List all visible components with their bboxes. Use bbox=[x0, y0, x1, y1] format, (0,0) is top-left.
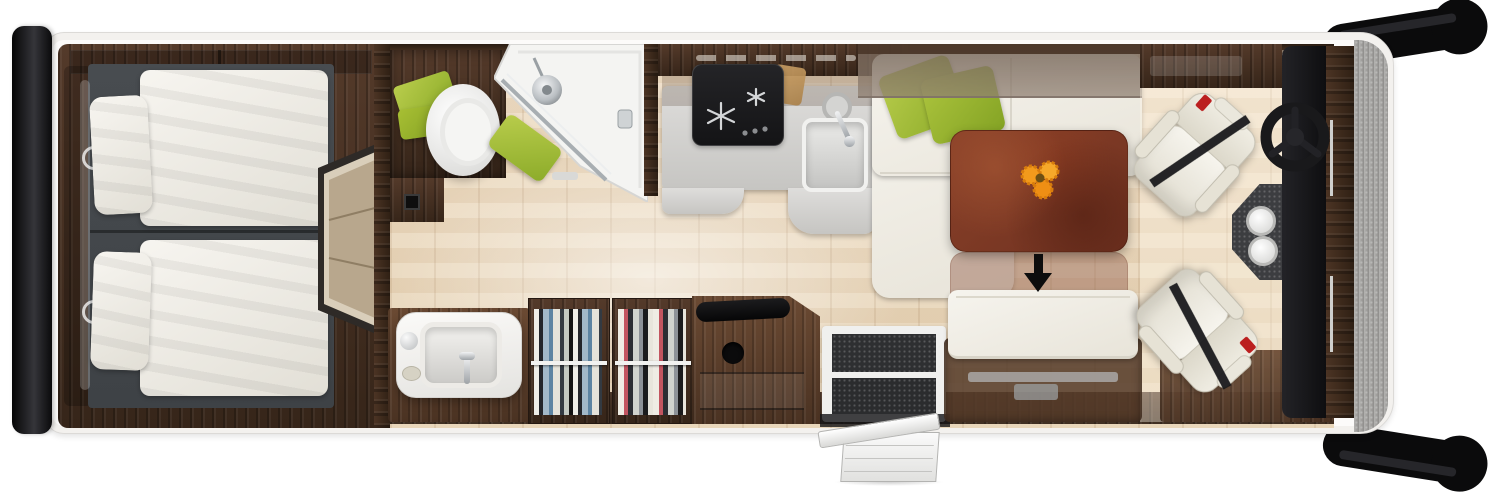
door-mat-lower bbox=[832, 378, 936, 414]
wardrobe-right bbox=[612, 298, 694, 424]
basin-knob-icon bbox=[400, 332, 418, 350]
cab-door-line-bottom bbox=[1330, 276, 1333, 352]
window-sheen bbox=[80, 80, 90, 390]
door-mat-upper bbox=[832, 334, 936, 372]
tv-swivel-top bbox=[696, 298, 791, 323]
table-slide-arrow-icon bbox=[1024, 254, 1053, 294]
basin-tap-icon bbox=[464, 356, 470, 384]
sideboard-shelf bbox=[700, 372, 804, 410]
bed-pillow-top bbox=[89, 95, 153, 216]
underbench-motor bbox=[1014, 384, 1058, 400]
shower-mixer-icon bbox=[618, 110, 632, 128]
gas-hob bbox=[692, 64, 784, 146]
lounge-table bbox=[950, 130, 1128, 252]
flower-vase-icon bbox=[1017, 157, 1063, 203]
cupholder-bottom-icon bbox=[1248, 236, 1278, 266]
bed-duvet-bottom bbox=[140, 240, 328, 396]
kitchen-tap-base-icon bbox=[844, 136, 855, 147]
bed-pillow-bottom bbox=[90, 251, 152, 371]
lounge-overhead-locker bbox=[858, 44, 1142, 98]
hanger-rail-left-icon bbox=[531, 361, 607, 365]
step-tread-3 bbox=[844, 471, 932, 472]
cabinet-knob-icon bbox=[404, 194, 420, 210]
wardrobe-left bbox=[528, 298, 610, 424]
worktop-lip-left bbox=[662, 188, 744, 214]
soap-dish-icon bbox=[402, 366, 421, 381]
cable-hole-icon bbox=[722, 342, 744, 364]
cab-front-body bbox=[1354, 40, 1388, 432]
partition-kitchen-wall bbox=[644, 44, 658, 196]
bench-seat bbox=[948, 290, 1138, 359]
cupholder-top-icon bbox=[1246, 206, 1276, 236]
hanger-rail-right-icon bbox=[615, 361, 691, 365]
zone-bedroom bbox=[58, 44, 388, 428]
bed-divider-seam bbox=[90, 230, 330, 233]
cab-overhead-window bbox=[1150, 56, 1242, 76]
underbench-chassis bbox=[968, 372, 1118, 382]
step-tread-1 bbox=[846, 445, 934, 446]
floorplan-canvas bbox=[0, 0, 1498, 492]
bench-seat-lip bbox=[956, 296, 1130, 298]
rear-bumper bbox=[12, 26, 52, 434]
basin-tap-head-icon bbox=[459, 352, 475, 360]
steering-wheel-icon bbox=[1256, 98, 1334, 176]
tv-sideboard bbox=[692, 296, 820, 424]
kitchen-vent-dashes bbox=[696, 55, 856, 61]
toilet-seat-ring bbox=[440, 98, 496, 166]
bed-duvet-top bbox=[140, 70, 328, 226]
washbasin-unit bbox=[388, 308, 530, 422]
step-tread-2 bbox=[845, 458, 933, 459]
hob-burner-icon bbox=[693, 65, 783, 145]
entry-door-mat bbox=[822, 326, 946, 422]
